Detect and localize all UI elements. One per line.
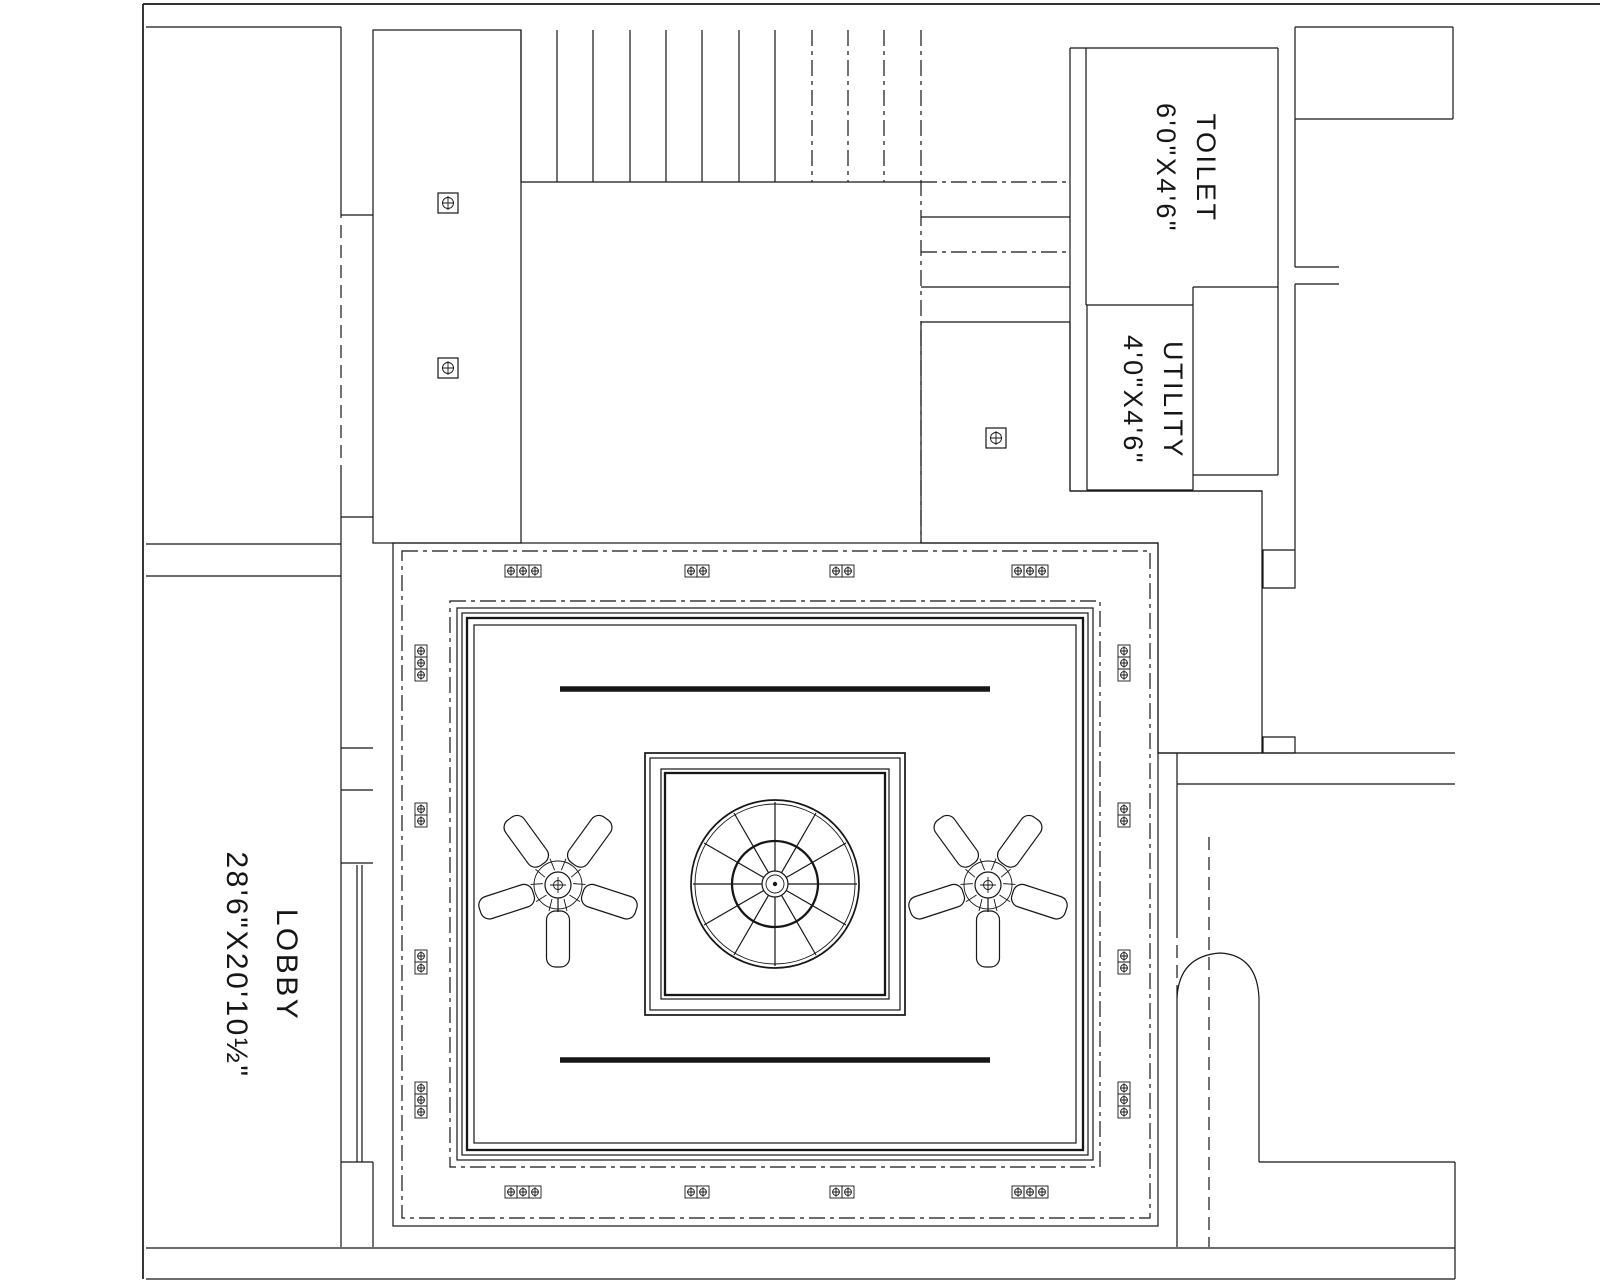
utility-room-dimensions: 4'0"X4'6" <box>1118 335 1148 465</box>
light-fixture-icon <box>1118 950 1130 962</box>
light-fixture-icon <box>685 1186 697 1198</box>
light-fixture-icon <box>830 565 842 577</box>
light-fixture-icon <box>1118 1094 1130 1106</box>
toilet-room-dimensions: 6'0"X4'6" <box>1151 103 1181 233</box>
light-fixture-icon <box>415 657 427 669</box>
light-fixture-icon <box>438 193 458 213</box>
light-fixture-icon <box>697 1186 709 1198</box>
arched-opening <box>1177 953 1259 998</box>
light-fixture-icon <box>1118 645 1130 657</box>
light-fixture-icon <box>529 565 541 577</box>
light-fixture-icon <box>1024 565 1036 577</box>
light-fixture-icon <box>1036 1186 1048 1198</box>
light-fixture-icon <box>842 565 854 577</box>
light-fixture-icon <box>685 565 697 577</box>
lobby-room-dimensions: 28'6"X20'10½" <box>220 851 253 1078</box>
light-fixture-icon <box>830 1186 842 1198</box>
utility-room-label: UTILITY <box>1158 341 1188 459</box>
light-fixture-icon <box>1118 1082 1130 1094</box>
light-fixture-icon <box>1118 962 1130 974</box>
light-fixture-icon <box>1118 657 1130 669</box>
ceiling-fan-icon <box>476 812 639 967</box>
room-labels: TOILET 6'0"X4'6" UTILITY 4'0"X4'6" LOBBY… <box>220 103 1221 1079</box>
light-fixture-icon <box>1012 565 1024 577</box>
stair-lines <box>921 182 1070 287</box>
light-fixture-icon <box>415 803 427 815</box>
cove-light-fixtures <box>415 565 1130 1198</box>
light-fixture-icon <box>505 565 517 577</box>
ceiling-beam <box>560 689 990 1060</box>
light-fixture-icon <box>1118 803 1130 815</box>
light-fixture-icon <box>415 1094 427 1106</box>
light-fixture-icon <box>1118 669 1130 681</box>
walls <box>143 4 1600 1279</box>
light-fixture-icon <box>1118 815 1130 827</box>
light-fixture-icon <box>1118 1106 1130 1118</box>
light-fixture-icon <box>415 815 427 827</box>
light-fixture-icon <box>1012 1186 1024 1198</box>
light-fixture-icon <box>415 669 427 681</box>
floor-plan-canvas: TOILET 6'0"X4'6" UTILITY 4'0"X4'6" LOBBY… <box>0 0 1600 1280</box>
light-fixture-icon <box>1036 565 1048 577</box>
light-fixture-icon <box>415 1106 427 1118</box>
light-fixture-icon <box>438 358 458 378</box>
light-fixture-icon <box>415 1082 427 1094</box>
light-fixture-icon <box>697 565 709 577</box>
light-fixture-icon <box>842 1186 854 1198</box>
ceiling-fan-icon <box>906 812 1069 967</box>
light-fixture-icon <box>505 1186 517 1198</box>
light-fixture-icon <box>986 428 1006 448</box>
ceiling-dome-icon <box>645 753 905 1015</box>
ceiling-strip-lines <box>521 30 921 543</box>
light-fixture-icon <box>517 565 529 577</box>
toilet-room-label: TOILET <box>1191 113 1221 222</box>
lobby-room-label: LOBBY <box>270 909 303 1022</box>
light-fixture-icon <box>415 962 427 974</box>
light-fixture-icon <box>1024 1186 1036 1198</box>
cad-floor-plan: TOILET 6'0"X4'6" UTILITY 4'0"X4'6" LOBBY… <box>0 0 1600 1280</box>
light-fixture-icon <box>415 645 427 657</box>
light-fixture-icon <box>529 1186 541 1198</box>
light-fixture-icon <box>415 950 427 962</box>
light-fixture-icon <box>517 1186 529 1198</box>
